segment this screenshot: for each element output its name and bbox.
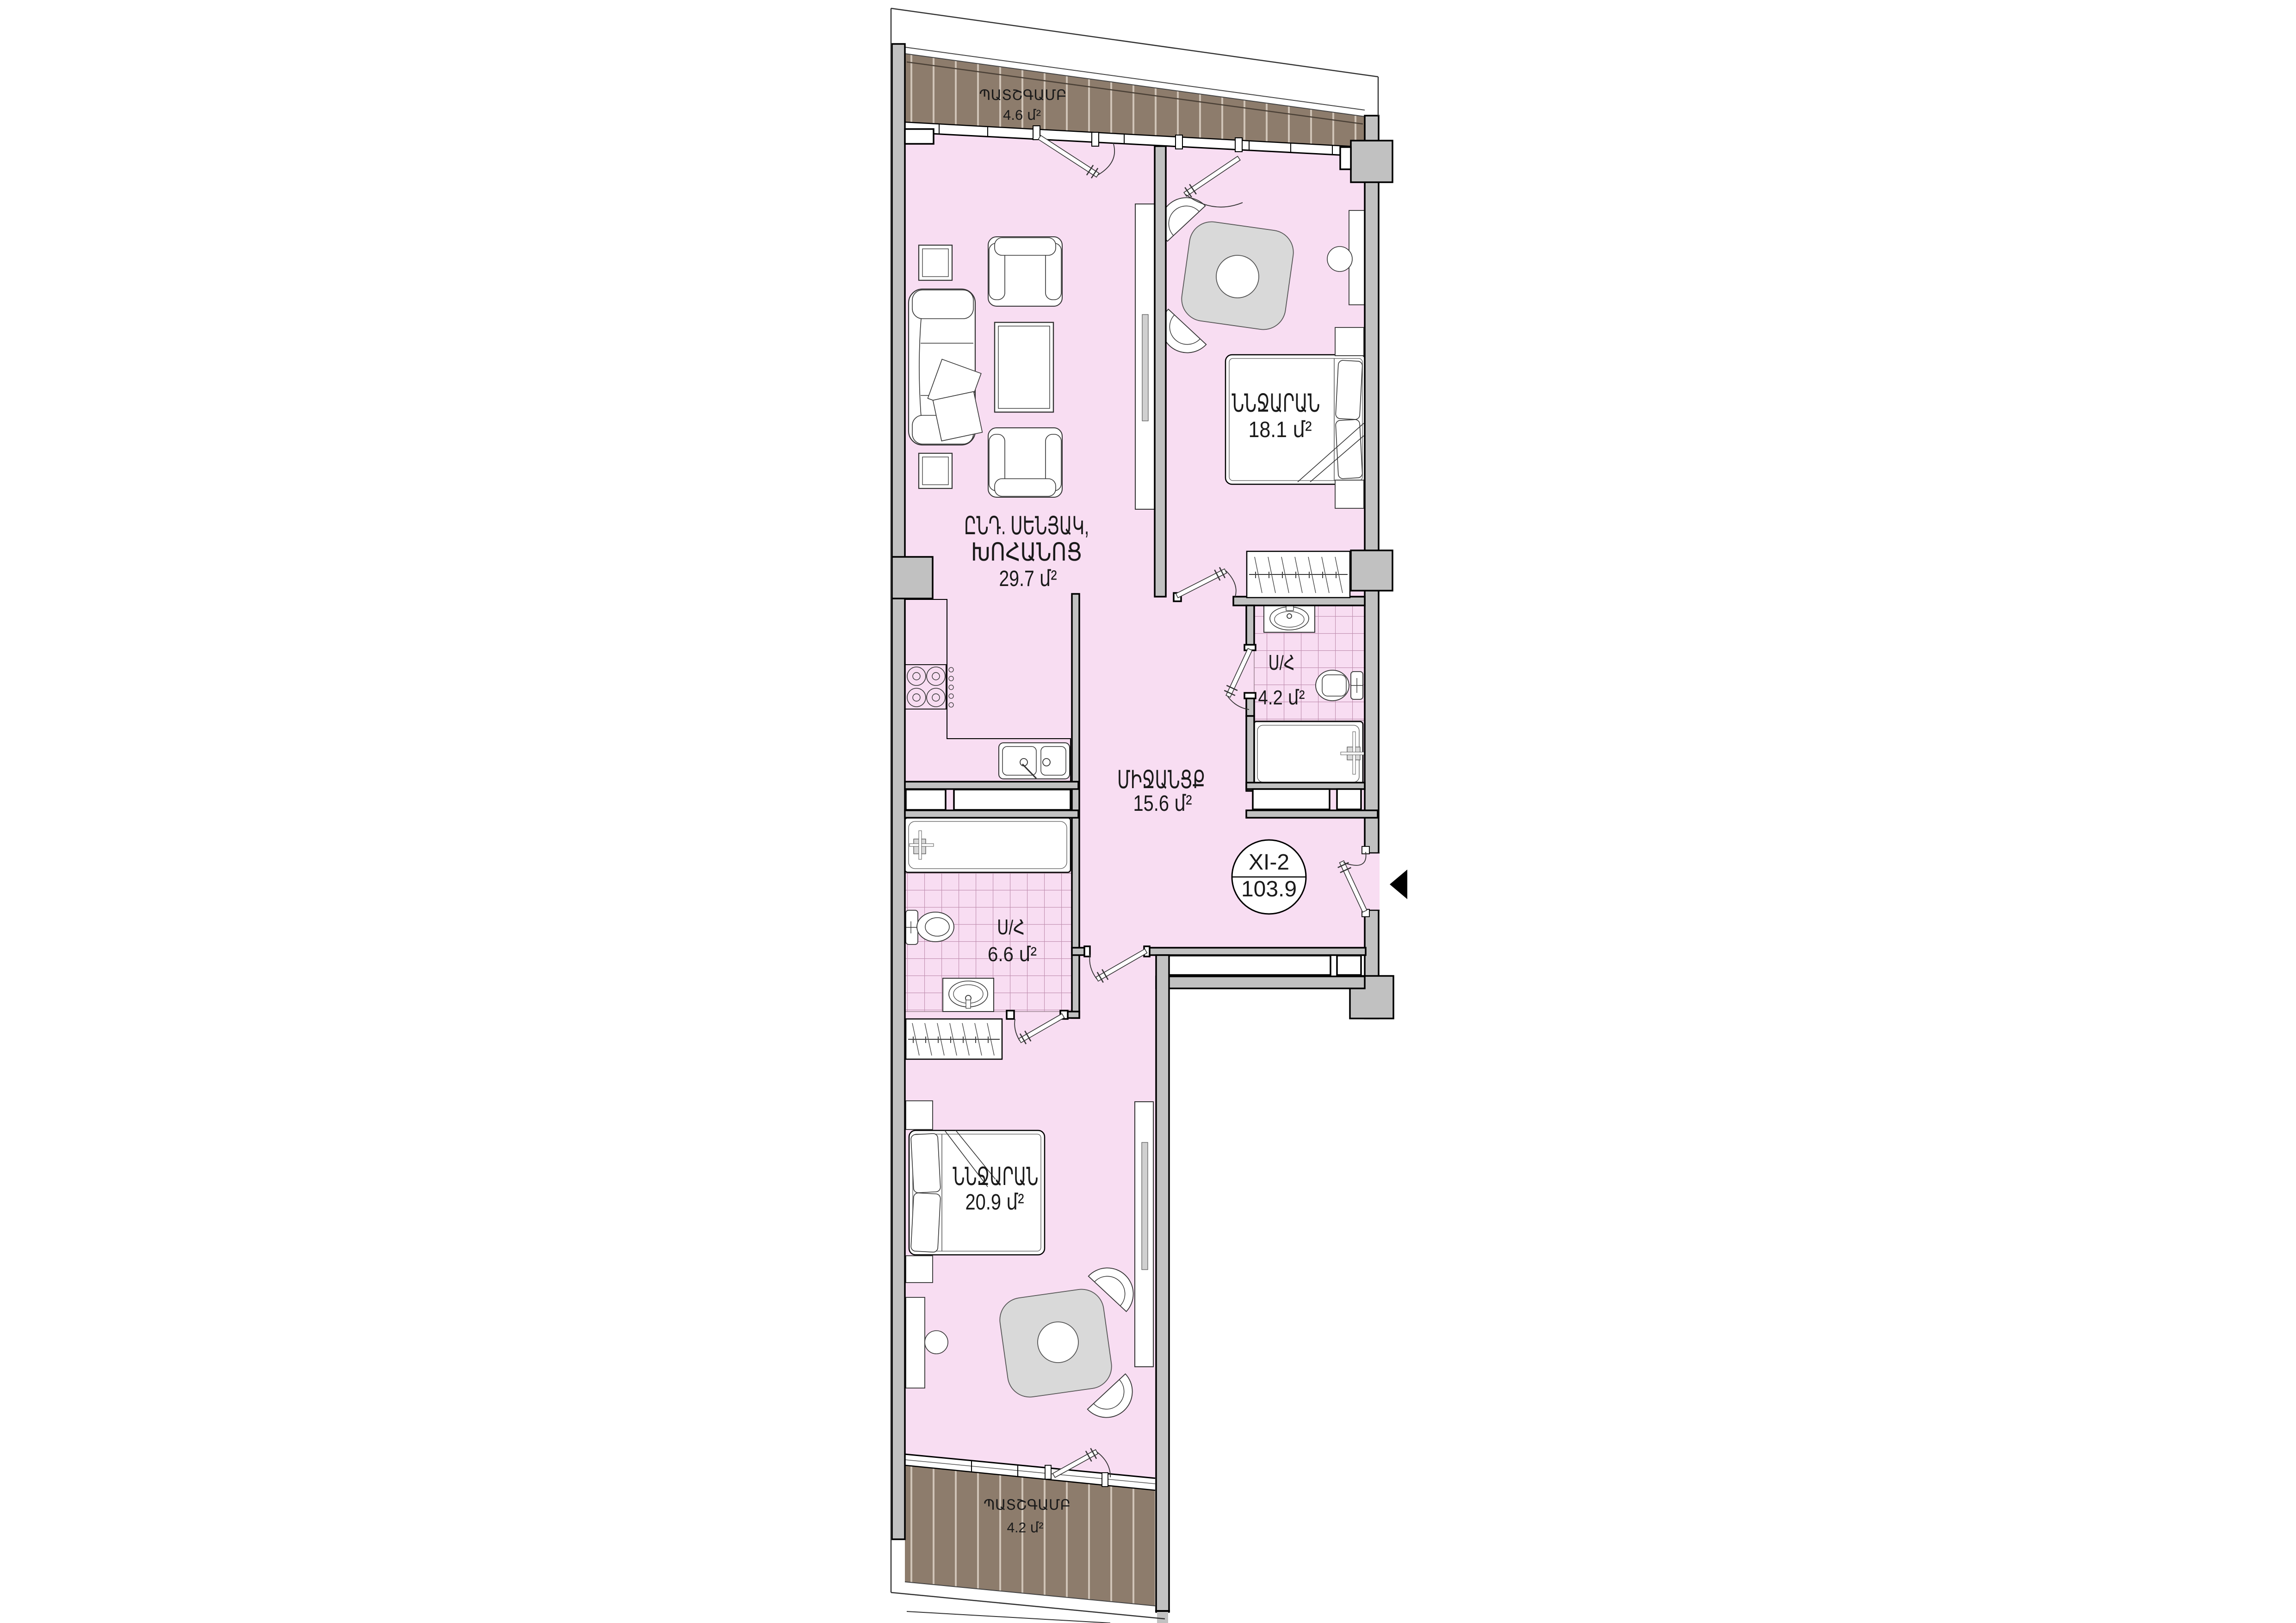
svg-text:ՊԱՏՇԳԱՄԲ: ՊԱՏՇԳԱՄԲ <box>979 87 1067 103</box>
svg-text:29.7 մ²: 29.7 մ² <box>999 567 1057 591</box>
svg-text:6.6 մ²: 6.6 մ² <box>988 943 1037 966</box>
svg-text:4.2 մ²: 4.2 մ² <box>1258 686 1305 709</box>
svg-text:ՄԻՋԱՆՑՔ: ՄԻՋԱՆՑՔ <box>1117 766 1205 794</box>
svg-text:103.9: 103.9 <box>1241 877 1297 901</box>
svg-text:XI-2: XI-2 <box>1249 850 1289 875</box>
svg-text:ԸՆԴ. ՍԵՆՅԱԿ,: ԸՆԴ. ՍԵՆՅԱԿ, <box>964 512 1089 540</box>
svg-text:ՆՆՋԱՐԱՆ: ՆՆՋԱՐԱՆ <box>953 1163 1039 1191</box>
svg-text:20.9 մ²: 20.9 մ² <box>965 1190 1024 1215</box>
svg-text:18.1 մ²: 18.1 մ² <box>1249 418 1312 442</box>
svg-text:Ս/Հ: Ս/Հ <box>997 916 1025 939</box>
svg-text:Ս/Հ: Ս/Հ <box>1269 652 1295 674</box>
svg-text:15.6 մ²: 15.6 մ² <box>1133 791 1192 816</box>
svg-text:ՆՆՋԱՐԱՆ: ՆՆՋԱՐԱՆ <box>1232 389 1320 417</box>
svg-text:ԽՈՀԱՆՈՑ: ԽՈՀԱՆՈՑ <box>971 538 1082 566</box>
svg-text:4.2 մ²: 4.2 մ² <box>1007 1519 1044 1536</box>
svg-text:ՊԱՏՇԳԱՄԲ: ՊԱՏՇԳԱՄԲ <box>984 1497 1071 1513</box>
svg-text:4.6 մ²: 4.6 մ² <box>1003 107 1041 123</box>
